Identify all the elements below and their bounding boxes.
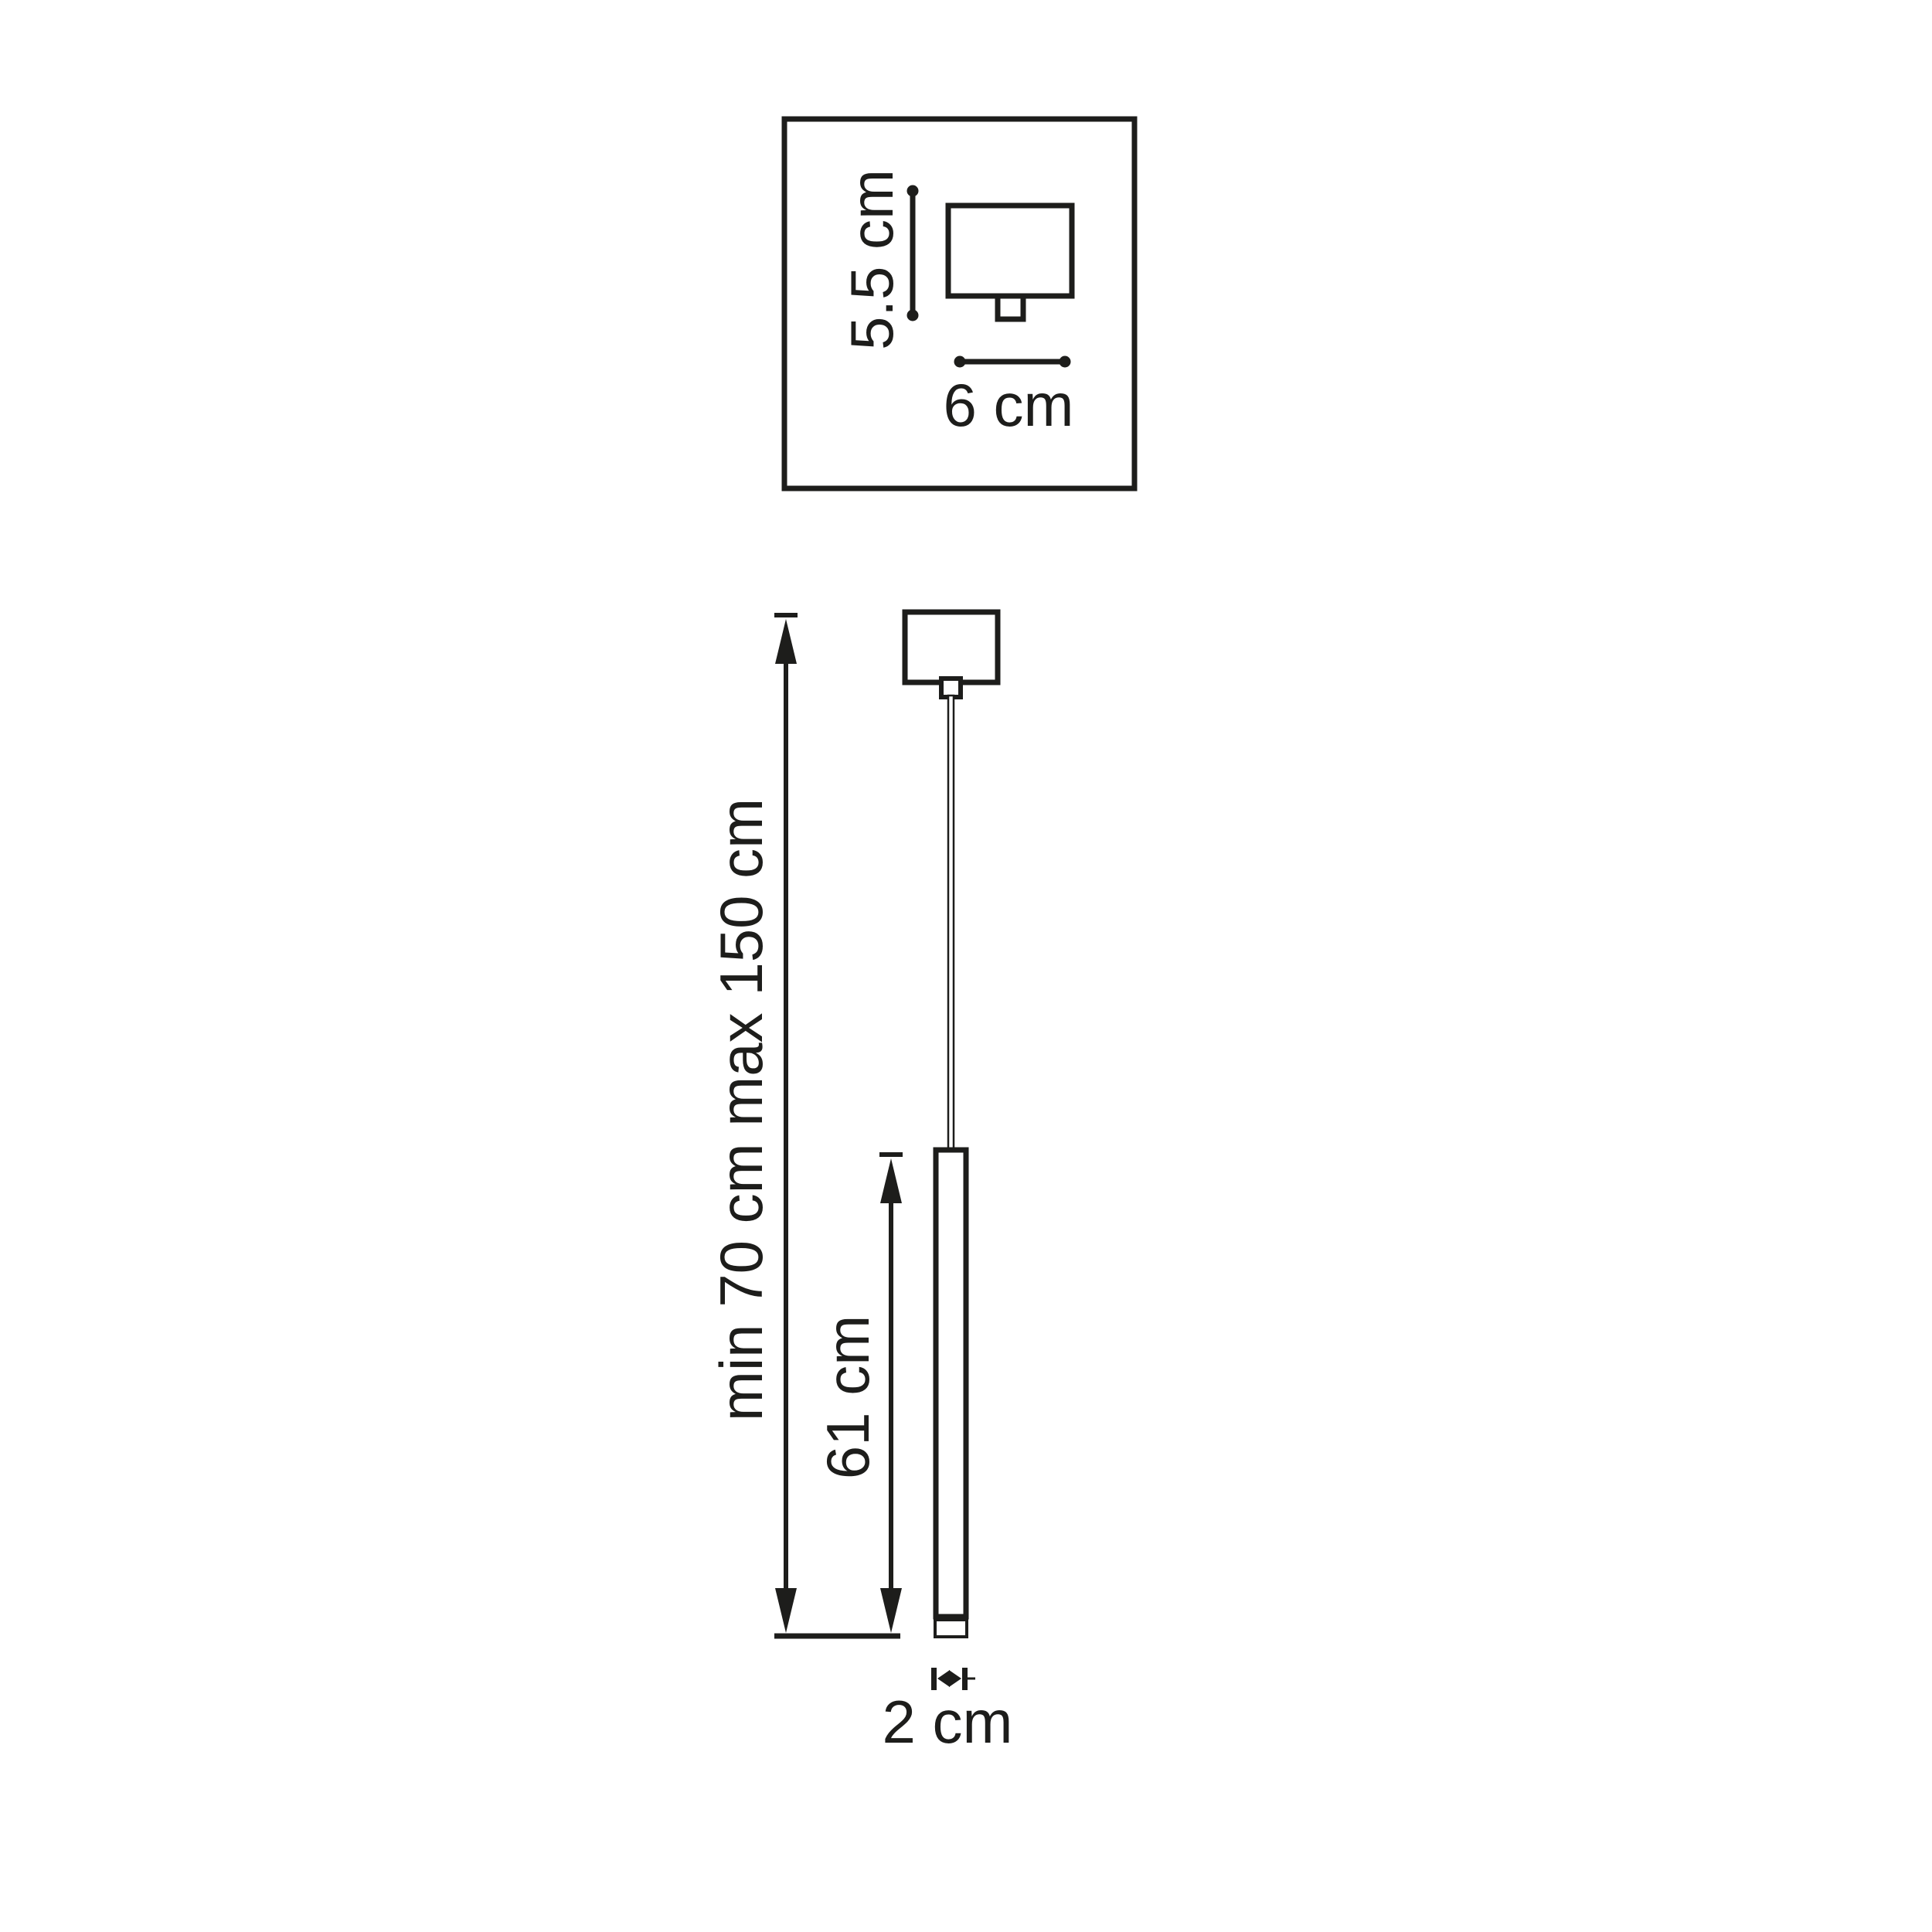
spec-canopy-width-label: 6 cm — [943, 375, 1073, 435]
overall-height-label: min 70 cm max 150 cm — [711, 798, 771, 1421]
arrowhead-down — [880, 1588, 902, 1633]
diameter-label: 2 cm — [882, 1692, 1012, 1752]
diameter-indicator — [934, 1668, 976, 1690]
pendant-elevation — [774, 612, 998, 1690]
lamp-tube-end-cap — [935, 1620, 967, 1637]
dim-dot — [1060, 356, 1071, 368]
dim-dot — [907, 185, 919, 197]
suspension-wire — [948, 696, 954, 1151]
fixture-height-dimension — [879, 1155, 903, 1633]
spec-width-dimension-line — [954, 356, 1071, 368]
spec-canopy-outline — [948, 206, 1072, 296]
line-art — [0, 0, 1932, 1932]
pendant-canopy-stem — [941, 679, 961, 697]
fixture-height-label: 61 cm — [818, 1315, 878, 1479]
lamp-tube-body — [936, 1150, 966, 1617]
dim-dot — [954, 356, 966, 368]
overall-height-dimension — [774, 615, 798, 1633]
spec-canopy-height-label: 5.5 cm — [842, 169, 902, 350]
dimension-diagram-page: 5.5 cm 6 cm min 70 cm max 150 cm 61 cm 2… — [0, 0, 1932, 1932]
arrowhead-down — [775, 1588, 797, 1633]
dim-dot — [907, 310, 919, 321]
pendant-canopy-outline — [905, 612, 998, 682]
arrowhead-left — [937, 1670, 950, 1687]
arrowhead-right — [949, 1670, 961, 1687]
spec-height-dimension-line — [907, 185, 919, 321]
spec-canopy-stem — [998, 296, 1023, 319]
